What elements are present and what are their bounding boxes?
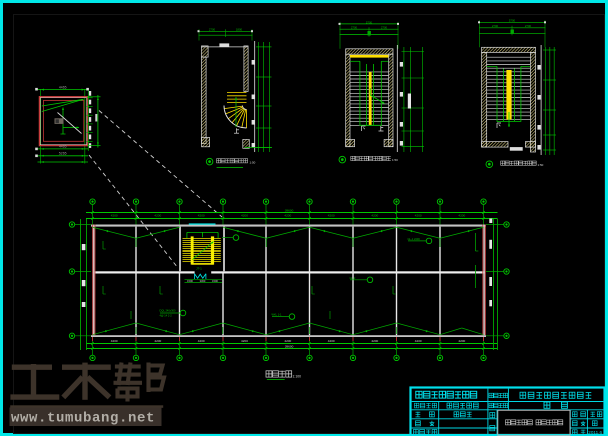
svg-text:39600: 39600: [285, 208, 294, 212]
svg-text:www.tumubang.net: www.tumubang.net: [11, 411, 155, 427]
svg-text:4200: 4200: [284, 339, 291, 343]
svg-text:4200: 4200: [458, 339, 465, 343]
svg-text:4200: 4200: [371, 339, 378, 343]
svg-text:4200: 4200: [415, 339, 422, 343]
svg-text:4465: 4465: [59, 85, 67, 89]
svg-text:5265: 5265: [59, 152, 67, 156]
svg-text:GL-2: GL-2: [350, 276, 356, 280]
svg-text:4465: 4465: [59, 145, 67, 149]
svg-text:1500: 1500: [187, 279, 193, 283]
svg-text:DQL 240x360: DQL 240x360: [160, 309, 176, 313]
svg-text:4@ 14 2-2: 4@ 14 2-2: [160, 314, 173, 318]
svg-text:3300: 3300: [200, 279, 206, 283]
svg-text:1500: 1500: [212, 279, 218, 283]
svg-text:4200: 4200: [371, 214, 378, 218]
svg-text:4200: 4200: [198, 214, 205, 218]
svg-text:2700: 2700: [492, 24, 499, 28]
svg-text:4200: 4200: [111, 214, 118, 218]
svg-text:5700: 5700: [509, 19, 516, 23]
svg-text:4200: 4200: [111, 339, 118, 343]
svg-text:4200: 4200: [328, 214, 335, 218]
svg-text:1:50: 1:50: [250, 161, 256, 165]
svg-text:2700: 2700: [381, 26, 388, 30]
svg-text:4200: 4200: [154, 214, 161, 218]
svg-text:2700: 2700: [209, 28, 216, 32]
svg-text:4200: 4200: [154, 339, 161, 343]
svg-text:4200: 4200: [198, 339, 205, 343]
svg-text:4200: 4200: [328, 339, 335, 343]
svg-text:4200: 4200: [415, 214, 422, 218]
svg-text:1:100: 1:100: [293, 374, 302, 378]
svg-text:5700: 5700: [366, 20, 373, 24]
svg-text:1:50: 1:50: [392, 158, 398, 162]
svg-text:4200: 4200: [458, 214, 465, 218]
svg-text:4200: 4200: [284, 214, 291, 218]
svg-text:4200: 4200: [241, 214, 248, 218]
svg-text:39600: 39600: [285, 344, 294, 348]
svg-text:JT-1: JT-1: [196, 267, 202, 271]
svg-text:GL-1 2400: GL-1 2400: [408, 237, 421, 241]
svg-text:1:50: 1:50: [538, 163, 544, 167]
svg-text:4200: 4200: [241, 339, 248, 343]
svg-text:WKL 1-1: WKL 1-1: [272, 312, 283, 316]
svg-text:2700: 2700: [351, 26, 358, 30]
svg-text:2011.6: 2011.6: [588, 430, 602, 435]
svg-text:1800: 1800: [236, 28, 243, 32]
svg-text:2700: 2700: [525, 24, 532, 28]
